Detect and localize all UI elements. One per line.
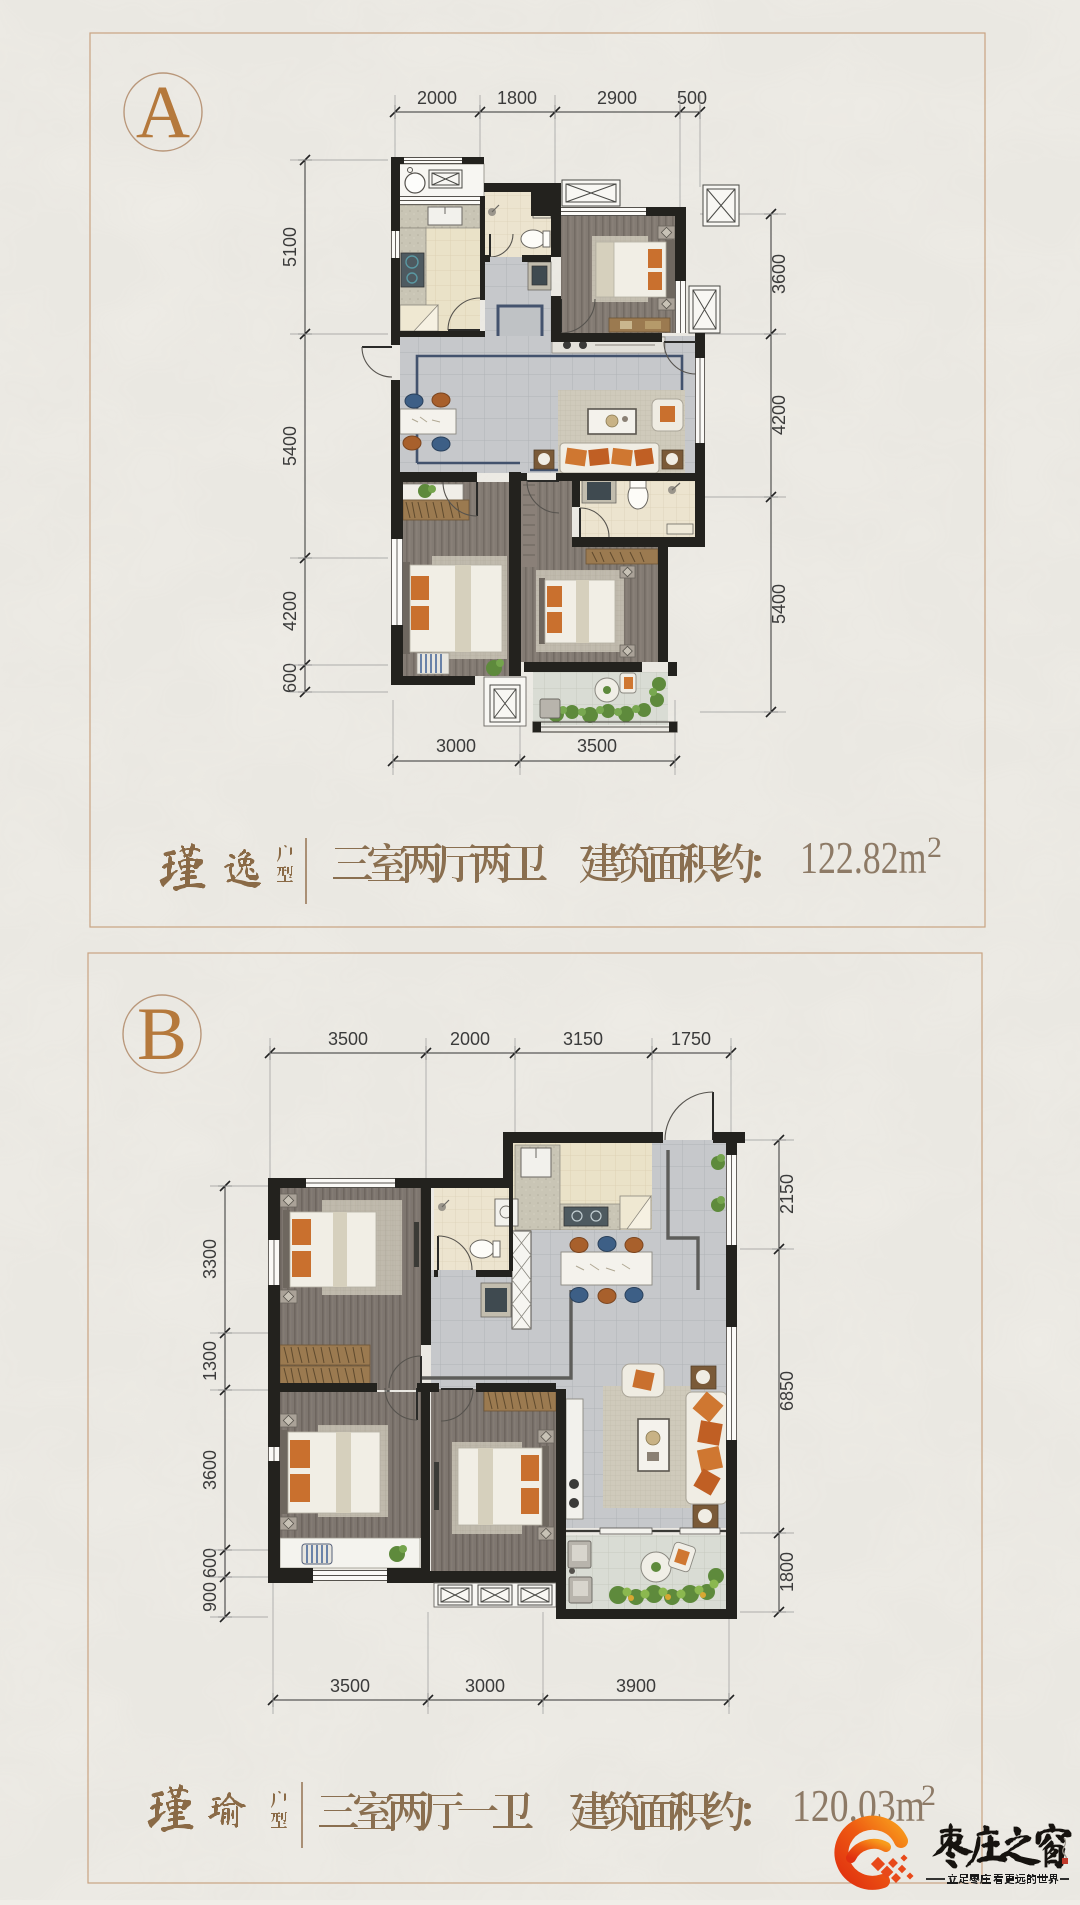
svg-text:1300: 1300 [200,1341,220,1381]
svg-text:5100: 5100 [280,227,300,267]
svg-text:A: A [136,71,190,154]
svg-text:2: 2 [921,1779,936,1812]
svg-text:3500: 3500 [577,736,617,756]
svg-text:3600: 3600 [769,254,789,294]
svg-text:3000: 3000 [436,736,476,756]
svg-text:3150: 3150 [563,1029,603,1049]
svg-text:5400: 5400 [769,584,789,624]
svg-text:3500: 3500 [330,1676,370,1696]
svg-text:2000: 2000 [450,1029,490,1049]
svg-text:3500: 3500 [328,1029,368,1049]
svg-text:500: 500 [677,88,707,108]
svg-text:4200: 4200 [769,395,789,435]
svg-text:6850: 6850 [777,1371,797,1411]
svg-text:4200: 4200 [280,591,300,631]
svg-text:B: B [137,993,187,1076]
svg-text:1800: 1800 [497,88,537,108]
svg-text:2900: 2900 [597,88,637,108]
svg-text:600: 600 [200,1548,220,1578]
svg-text:122.82m: 122.82m [800,832,927,883]
svg-text:900: 900 [200,1582,220,1612]
svg-text:5400: 5400 [280,426,300,466]
svg-text:2000: 2000 [417,88,457,108]
svg-text:1750: 1750 [671,1029,711,1049]
svg-text:3600: 3600 [200,1450,220,1490]
svg-text:3000: 3000 [465,1676,505,1696]
svg-text:2: 2 [927,831,942,864]
svg-text:3300: 3300 [200,1239,220,1279]
svg-text:2150: 2150 [777,1174,797,1214]
svg-text:1800: 1800 [777,1552,797,1592]
svg-text:600: 600 [280,663,300,693]
svg-text:3900: 3900 [616,1676,656,1696]
